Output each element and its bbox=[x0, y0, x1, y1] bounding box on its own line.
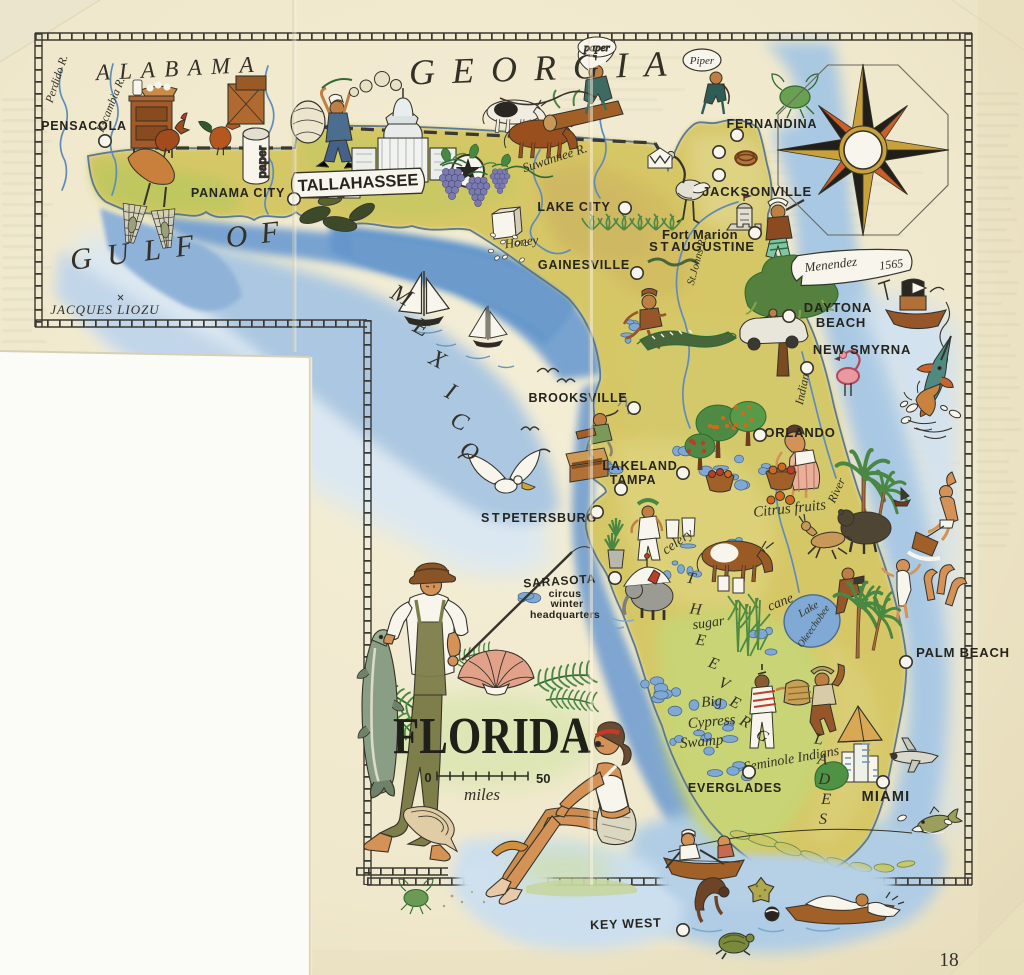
svg-text:LAKE CITY: LAKE CITY bbox=[537, 200, 610, 214]
svg-text:MIAMI: MIAMI bbox=[862, 789, 911, 805]
svg-text:PENSACOLA: PENSACOLA bbox=[41, 119, 127, 133]
svg-text:GAINESVILLE: GAINESVILLE bbox=[538, 258, 630, 272]
svg-text:JACKSONVILLE: JACKSONVILLE bbox=[702, 184, 812, 199]
svg-text:1565: 1565 bbox=[878, 256, 904, 273]
svg-text:D: D bbox=[817, 771, 831, 789]
svg-text:ORLANDO: ORLANDO bbox=[764, 425, 835, 440]
svg-text:E: E bbox=[820, 791, 832, 808]
svg-text:O F: O F bbox=[224, 215, 284, 255]
svg-text:S T AUGUSTINE: S T AUGUSTINE bbox=[649, 239, 755, 254]
svg-text:PALM BEACH: PALM BEACH bbox=[916, 645, 1010, 660]
svg-text:18: 18 bbox=[939, 950, 959, 971]
svg-text:Big: Big bbox=[701, 693, 724, 711]
svg-text:PANAMA CITY: PANAMA CITY bbox=[191, 186, 285, 200]
svg-text:KEY WEST: KEY WEST bbox=[590, 916, 662, 932]
svg-text:0: 0 bbox=[424, 770, 431, 785]
svg-text:BEACH: BEACH bbox=[816, 315, 866, 330]
svg-text:miles: miles bbox=[464, 785, 500, 804]
svg-text:A: A bbox=[816, 750, 829, 768]
svg-text:Piper: Piper bbox=[689, 55, 715, 67]
svg-text:JACQUES LIOZU: JACQUES LIOZU bbox=[50, 302, 160, 317]
svg-text:S T PETERSBURG: S T PETERSBURG bbox=[481, 511, 597, 525]
svg-text:NEW SMYRNA: NEW SMYRNA bbox=[813, 342, 911, 357]
svg-text:50: 50 bbox=[536, 771, 550, 786]
svg-text:LAKELAND: LAKELAND bbox=[602, 459, 677, 473]
svg-text:EVERGLADES: EVERGLADES bbox=[688, 781, 782, 795]
svg-text:FLORIDA: FLORIDA bbox=[393, 708, 591, 765]
svg-text:BROOKSVILLE: BROOKSVILLE bbox=[528, 391, 627, 405]
svg-text:paper: paper bbox=[255, 145, 269, 178]
svg-text:S: S bbox=[819, 811, 827, 828]
svg-text:DAYTONA: DAYTONA bbox=[804, 300, 872, 315]
